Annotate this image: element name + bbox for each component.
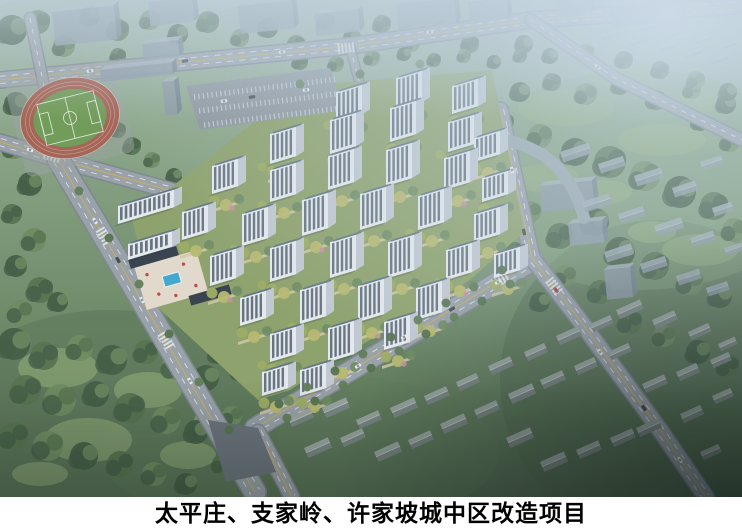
aerial-scene [0,0,742,497]
vignette [0,0,742,497]
rendering-image [0,0,742,497]
project-title: 太平庄、支家岭、许家坡城中区改造项目 [155,497,587,529]
atmosphere [0,0,742,497]
caption-bar: 太平庄、支家岭、许家坡城中区改造项目 [0,497,742,529]
screenshot: 太平庄、支家岭、许家坡城中区改造项目 [0,0,742,529]
